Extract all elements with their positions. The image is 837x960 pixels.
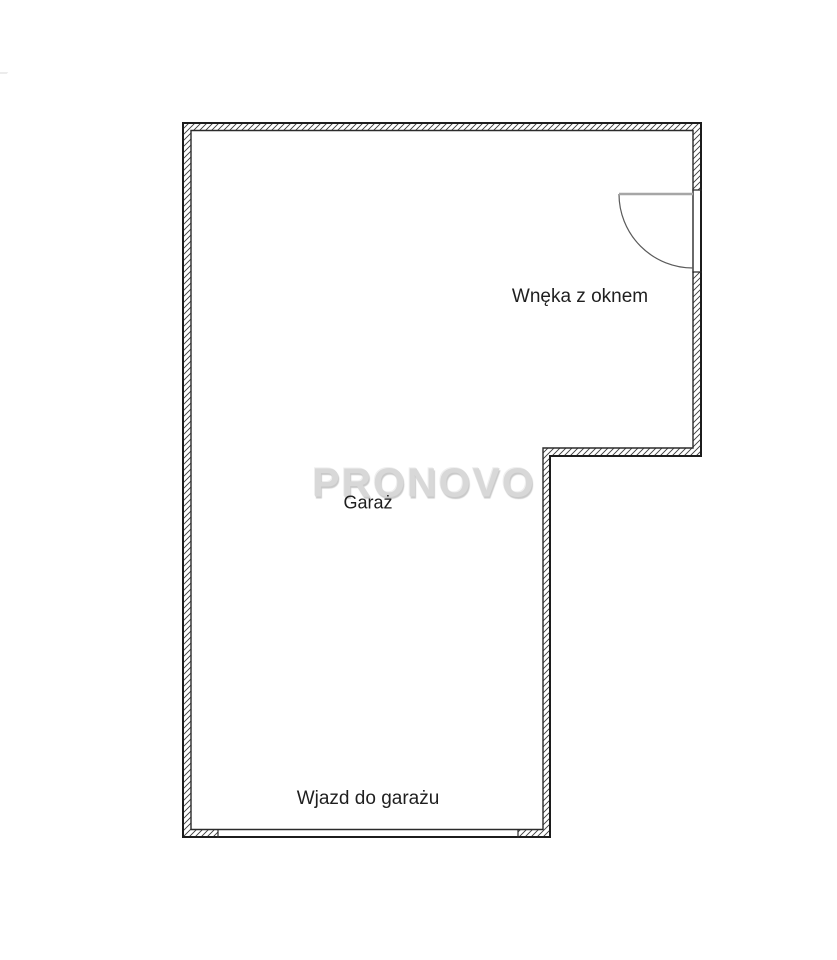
wall-hatch-fill xyxy=(183,123,701,837)
label-garage-entrance: Wjazd do garażu xyxy=(297,788,440,810)
wall-outline-inner xyxy=(191,131,693,830)
label-garage: Garaż xyxy=(343,493,392,514)
wall-outline-outer xyxy=(183,123,701,837)
door-swing-arc xyxy=(619,194,693,268)
floorplan-image: PRONOVO Wnęka z oknem Garaż Wjazd do gar… xyxy=(0,0,837,960)
label-alcove: Wnęka z oknem xyxy=(512,286,648,308)
floorplan-svg xyxy=(0,0,837,960)
